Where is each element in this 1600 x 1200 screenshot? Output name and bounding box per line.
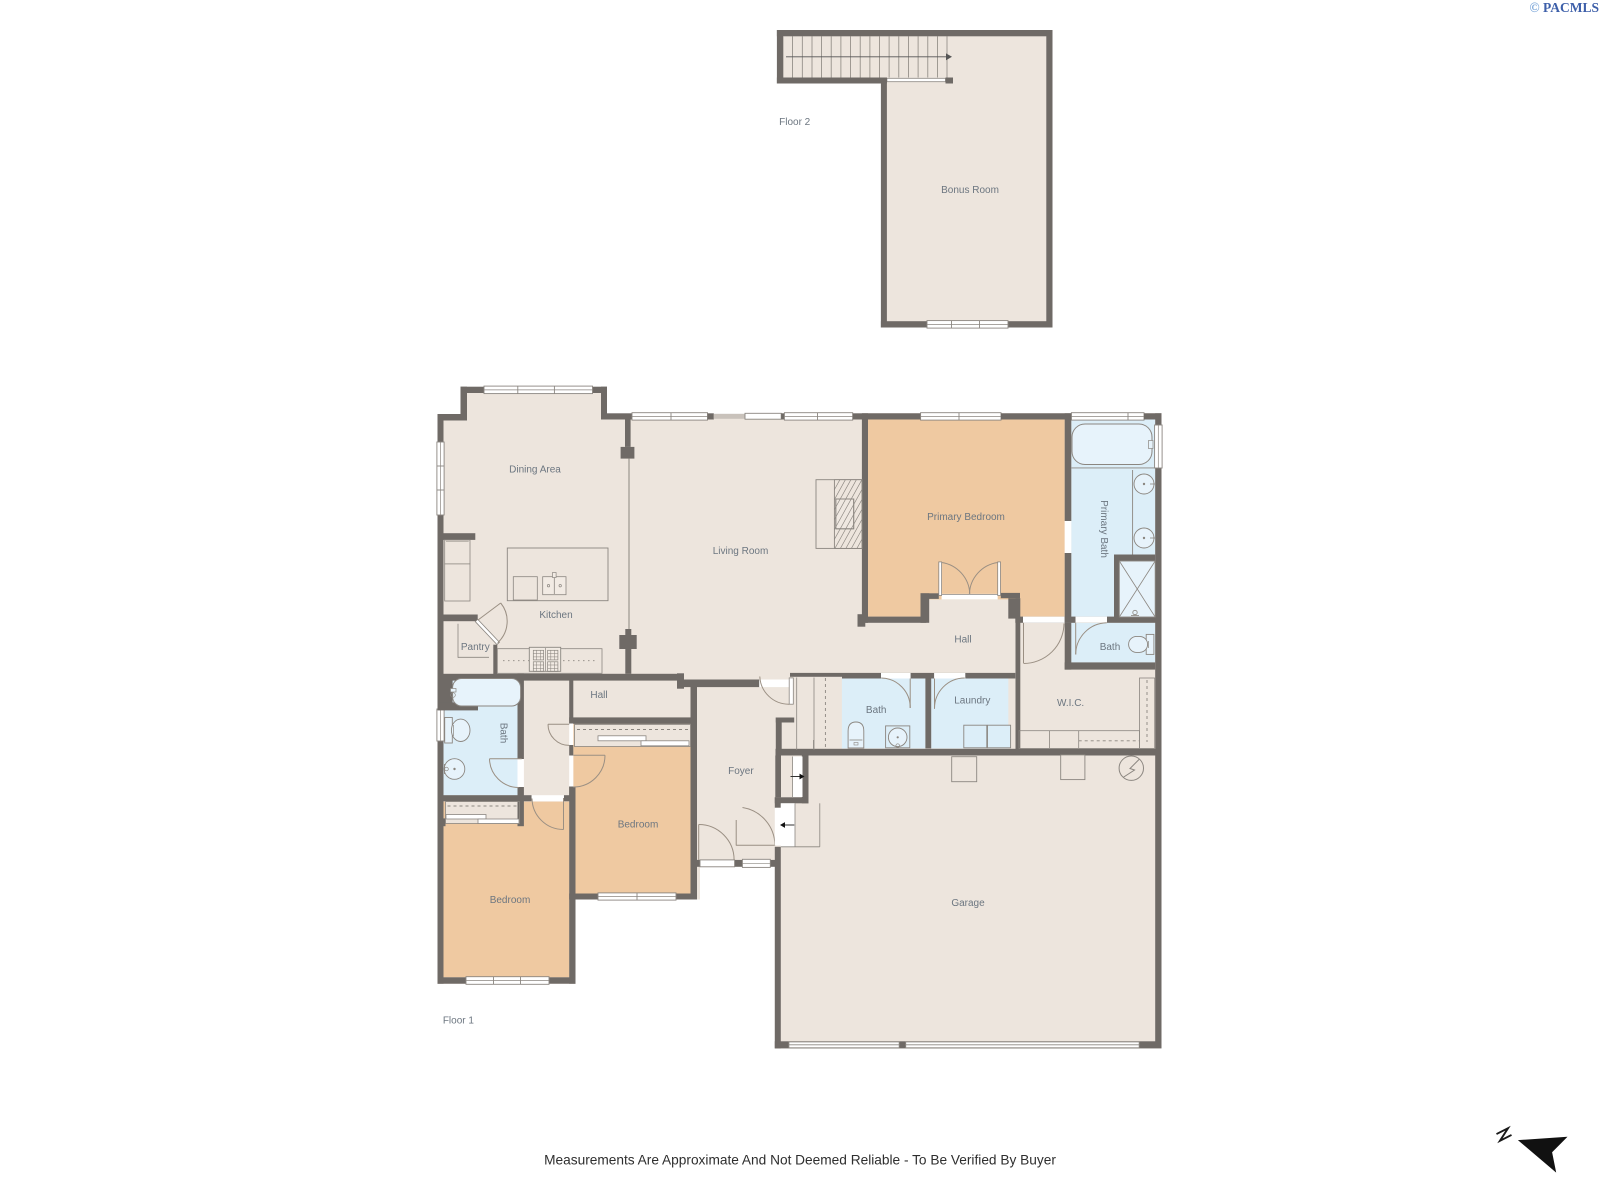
svg-text:Living Room: Living Room bbox=[713, 546, 769, 557]
svg-text:Hall: Hall bbox=[954, 635, 971, 646]
svg-text:Bedroom: Bedroom bbox=[618, 820, 659, 831]
svg-text:Foyer: Foyer bbox=[728, 766, 754, 777]
svg-text:Dining Area: Dining Area bbox=[509, 465, 561, 476]
svg-text:Floor 2: Floor 2 bbox=[779, 117, 811, 128]
svg-text:Bedroom: Bedroom bbox=[490, 895, 531, 906]
svg-text:Hall: Hall bbox=[590, 690, 607, 701]
svg-text:Bonus Room: Bonus Room bbox=[941, 185, 999, 196]
svg-text:Bath: Bath bbox=[498, 723, 509, 744]
svg-text:Bath: Bath bbox=[1100, 642, 1121, 653]
svg-text:Primary Bedroom: Primary Bedroom bbox=[927, 512, 1005, 523]
svg-text:Laundry: Laundry bbox=[954, 696, 990, 707]
svg-text:W.I.C.: W.I.C. bbox=[1057, 698, 1084, 709]
svg-text:© PACMLS: © PACMLS bbox=[1530, 0, 1599, 15]
svg-text:Kitchen: Kitchen bbox=[539, 610, 572, 621]
svg-text:Measurements Are Approximate A: Measurements Are Approximate And Not Dee… bbox=[544, 1153, 1056, 1168]
svg-text:Bath: Bath bbox=[866, 705, 887, 716]
svg-text:Garage: Garage bbox=[951, 898, 985, 909]
svg-text:Primary Bath: Primary Bath bbox=[1098, 500, 1109, 558]
svg-text:Floor 1: Floor 1 bbox=[443, 1015, 475, 1026]
svg-text:Pantry: Pantry bbox=[461, 642, 490, 653]
